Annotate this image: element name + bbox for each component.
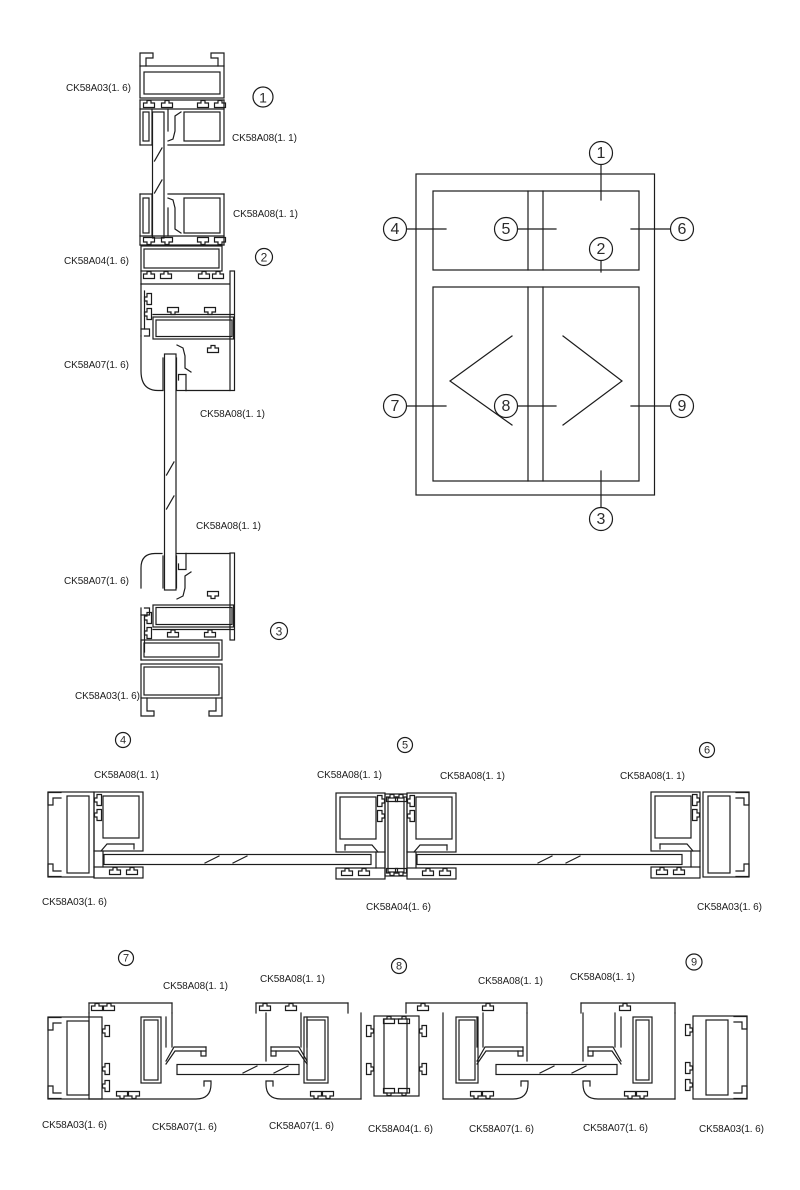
svg-text:CK58A03(1. 6): CK58A03(1. 6) [42, 897, 107, 908]
svg-text:CK58A07(1. 6): CK58A07(1. 6) [469, 1124, 534, 1135]
svg-text:4: 4 [391, 221, 400, 238]
svg-text:2: 2 [597, 241, 606, 258]
svg-text:CK58A07(1. 6): CK58A07(1. 6) [152, 1122, 217, 1133]
svg-text:CK58A04(1. 6): CK58A04(1. 6) [368, 1124, 433, 1135]
svg-text:CK58A03(1. 6): CK58A03(1. 6) [75, 691, 140, 702]
svg-text:5: 5 [402, 740, 408, 752]
svg-text:6: 6 [678, 221, 687, 238]
svg-text:CK58A07(1. 6): CK58A07(1. 6) [64, 360, 129, 371]
svg-text:1: 1 [259, 90, 267, 106]
svg-text:CK58A03(1. 6): CK58A03(1. 6) [42, 1120, 107, 1131]
svg-text:CK58A04(1. 6): CK58A04(1. 6) [366, 902, 431, 913]
svg-text:CK58A03(1. 6): CK58A03(1. 6) [699, 1124, 764, 1135]
svg-text:CK58A08(1. 1): CK58A08(1. 1) [317, 770, 382, 781]
svg-text:CK58A08(1. 1): CK58A08(1. 1) [200, 409, 265, 420]
svg-text:CK58A08(1. 1): CK58A08(1. 1) [163, 981, 228, 992]
svg-text:5: 5 [502, 221, 511, 238]
svg-text:CK58A07(1. 6): CK58A07(1. 6) [64, 576, 129, 587]
svg-text:CK58A08(1. 1): CK58A08(1. 1) [478, 976, 543, 987]
svg-text:2: 2 [261, 251, 268, 265]
svg-text:7: 7 [123, 953, 129, 965]
svg-text:4: 4 [120, 735, 126, 747]
svg-text:CK58A08(1. 1): CK58A08(1. 1) [570, 972, 635, 983]
svg-text:CK58A08(1. 1): CK58A08(1. 1) [260, 974, 325, 985]
svg-text:8: 8 [396, 961, 402, 973]
svg-text:CK58A08(1. 1): CK58A08(1. 1) [440, 771, 505, 782]
svg-text:9: 9 [691, 957, 697, 969]
svg-text:CK58A08(1. 1): CK58A08(1. 1) [196, 521, 261, 532]
svg-text:CK58A08(1. 1): CK58A08(1. 1) [620, 771, 685, 782]
svg-text:CK58A08(1. 1): CK58A08(1. 1) [94, 770, 159, 781]
svg-text:1: 1 [597, 145, 606, 162]
svg-text:CK58A04(1. 6): CK58A04(1. 6) [64, 256, 129, 267]
svg-text:7: 7 [391, 398, 400, 415]
svg-text:CK58A07(1. 6): CK58A07(1. 6) [583, 1123, 648, 1134]
svg-text:3: 3 [276, 625, 283, 639]
svg-text:CK58A03(1. 6): CK58A03(1. 6) [66, 83, 131, 94]
svg-text:CK58A03(1. 6): CK58A03(1. 6) [697, 902, 762, 913]
svg-text:6: 6 [704, 745, 710, 757]
svg-text:9: 9 [678, 398, 687, 415]
svg-text:CK58A08(1. 1): CK58A08(1. 1) [232, 133, 297, 144]
svg-text:3: 3 [597, 511, 606, 528]
svg-text:CK58A07(1. 6): CK58A07(1. 6) [269, 1121, 334, 1132]
svg-text:CK58A08(1. 1): CK58A08(1. 1) [233, 209, 298, 220]
svg-text:8: 8 [502, 398, 511, 415]
